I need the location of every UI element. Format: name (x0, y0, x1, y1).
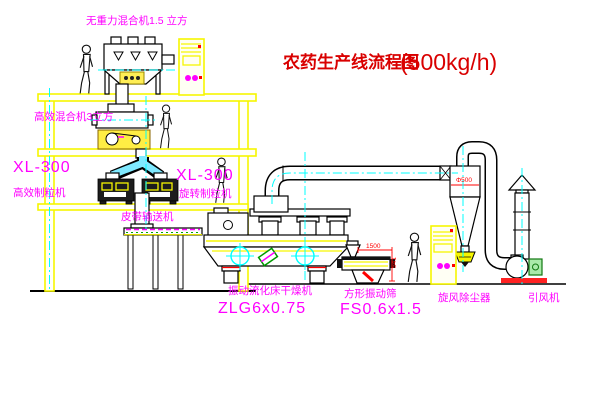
dryer-foot-right (308, 266, 326, 283)
fan-base (501, 278, 547, 283)
person-figure (161, 105, 172, 148)
person-figure (408, 233, 420, 282)
cabinet-label-mark (185, 75, 191, 81)
label-dryer-model: ZLG6x0.75 (218, 300, 306, 317)
indicator-dot (452, 264, 455, 267)
label-granulator-left-model: XL-300 (13, 159, 71, 176)
label-granulator-right-name: 旋转制粒机 (179, 187, 232, 200)
cabinet-label-mark (444, 263, 450, 269)
label-granulator-right-model: XL-300 (176, 167, 234, 184)
label-sieve-model: FS0.6x1.5 (340, 301, 422, 318)
page-title: 农药生产线流程图 (282, 52, 419, 72)
dim-cyclone-diameter: Φ500 (456, 177, 472, 184)
cabinet-label-mark (192, 75, 198, 81)
label-belt-conveyor: 皮带输送机 (121, 210, 174, 223)
granulator-left-machine (98, 173, 134, 204)
dim-sieve-height: 541 (391, 257, 398, 268)
label-gravity-mixer: 无重力混合机1.5 立方 (86, 14, 188, 27)
cad-canvas: 无重力混合机1.5 立方 农药生产线流程图 (500kg/h) 高效混合机3立方… (0, 0, 600, 403)
control-cabinet-top (179, 39, 204, 95)
control-cabinet-bottom (431, 226, 456, 284)
dryer-exhaust-hood (254, 196, 288, 212)
exhaust-duct-dryer-to-cyclone (272, 166, 448, 201)
label-efficient-mixer: 高效混合机3立方 (34, 110, 113, 123)
dim-sieve-width: 1500 (366, 243, 381, 250)
mixer-side-pipe (162, 55, 174, 64)
label-cyclone: 旋风除尘器 (438, 291, 491, 304)
building-floor-slab-2 (38, 149, 256, 156)
indicator-dot (450, 229, 453, 232)
process-flow-diagram: 无重力混合机1.5 立方 农药生产线流程图 (500kg/h) 高效混合机3立方… (0, 0, 600, 403)
building-roof-slab (38, 94, 256, 101)
indicator-dot (198, 45, 201, 48)
page-title-capacity: (500kg/h) (400, 49, 497, 75)
label-sieve-name: 方形振动筛 (344, 287, 397, 300)
belt-conveyor-machine (124, 228, 202, 289)
cabinet-label-mark (437, 263, 443, 269)
label-granulator-left-name: 高效制粒机 (13, 186, 66, 199)
fluid-bed-dryer-machine (204, 196, 350, 283)
dryer-foot-left (222, 266, 240, 283)
label-dryer-name: 振动流化床干燥机 (228, 284, 312, 297)
person-figure (80, 45, 92, 93)
indicator-dot (199, 76, 202, 79)
fan-motor (529, 259, 542, 275)
label-fan: 引风机 (528, 291, 560, 304)
